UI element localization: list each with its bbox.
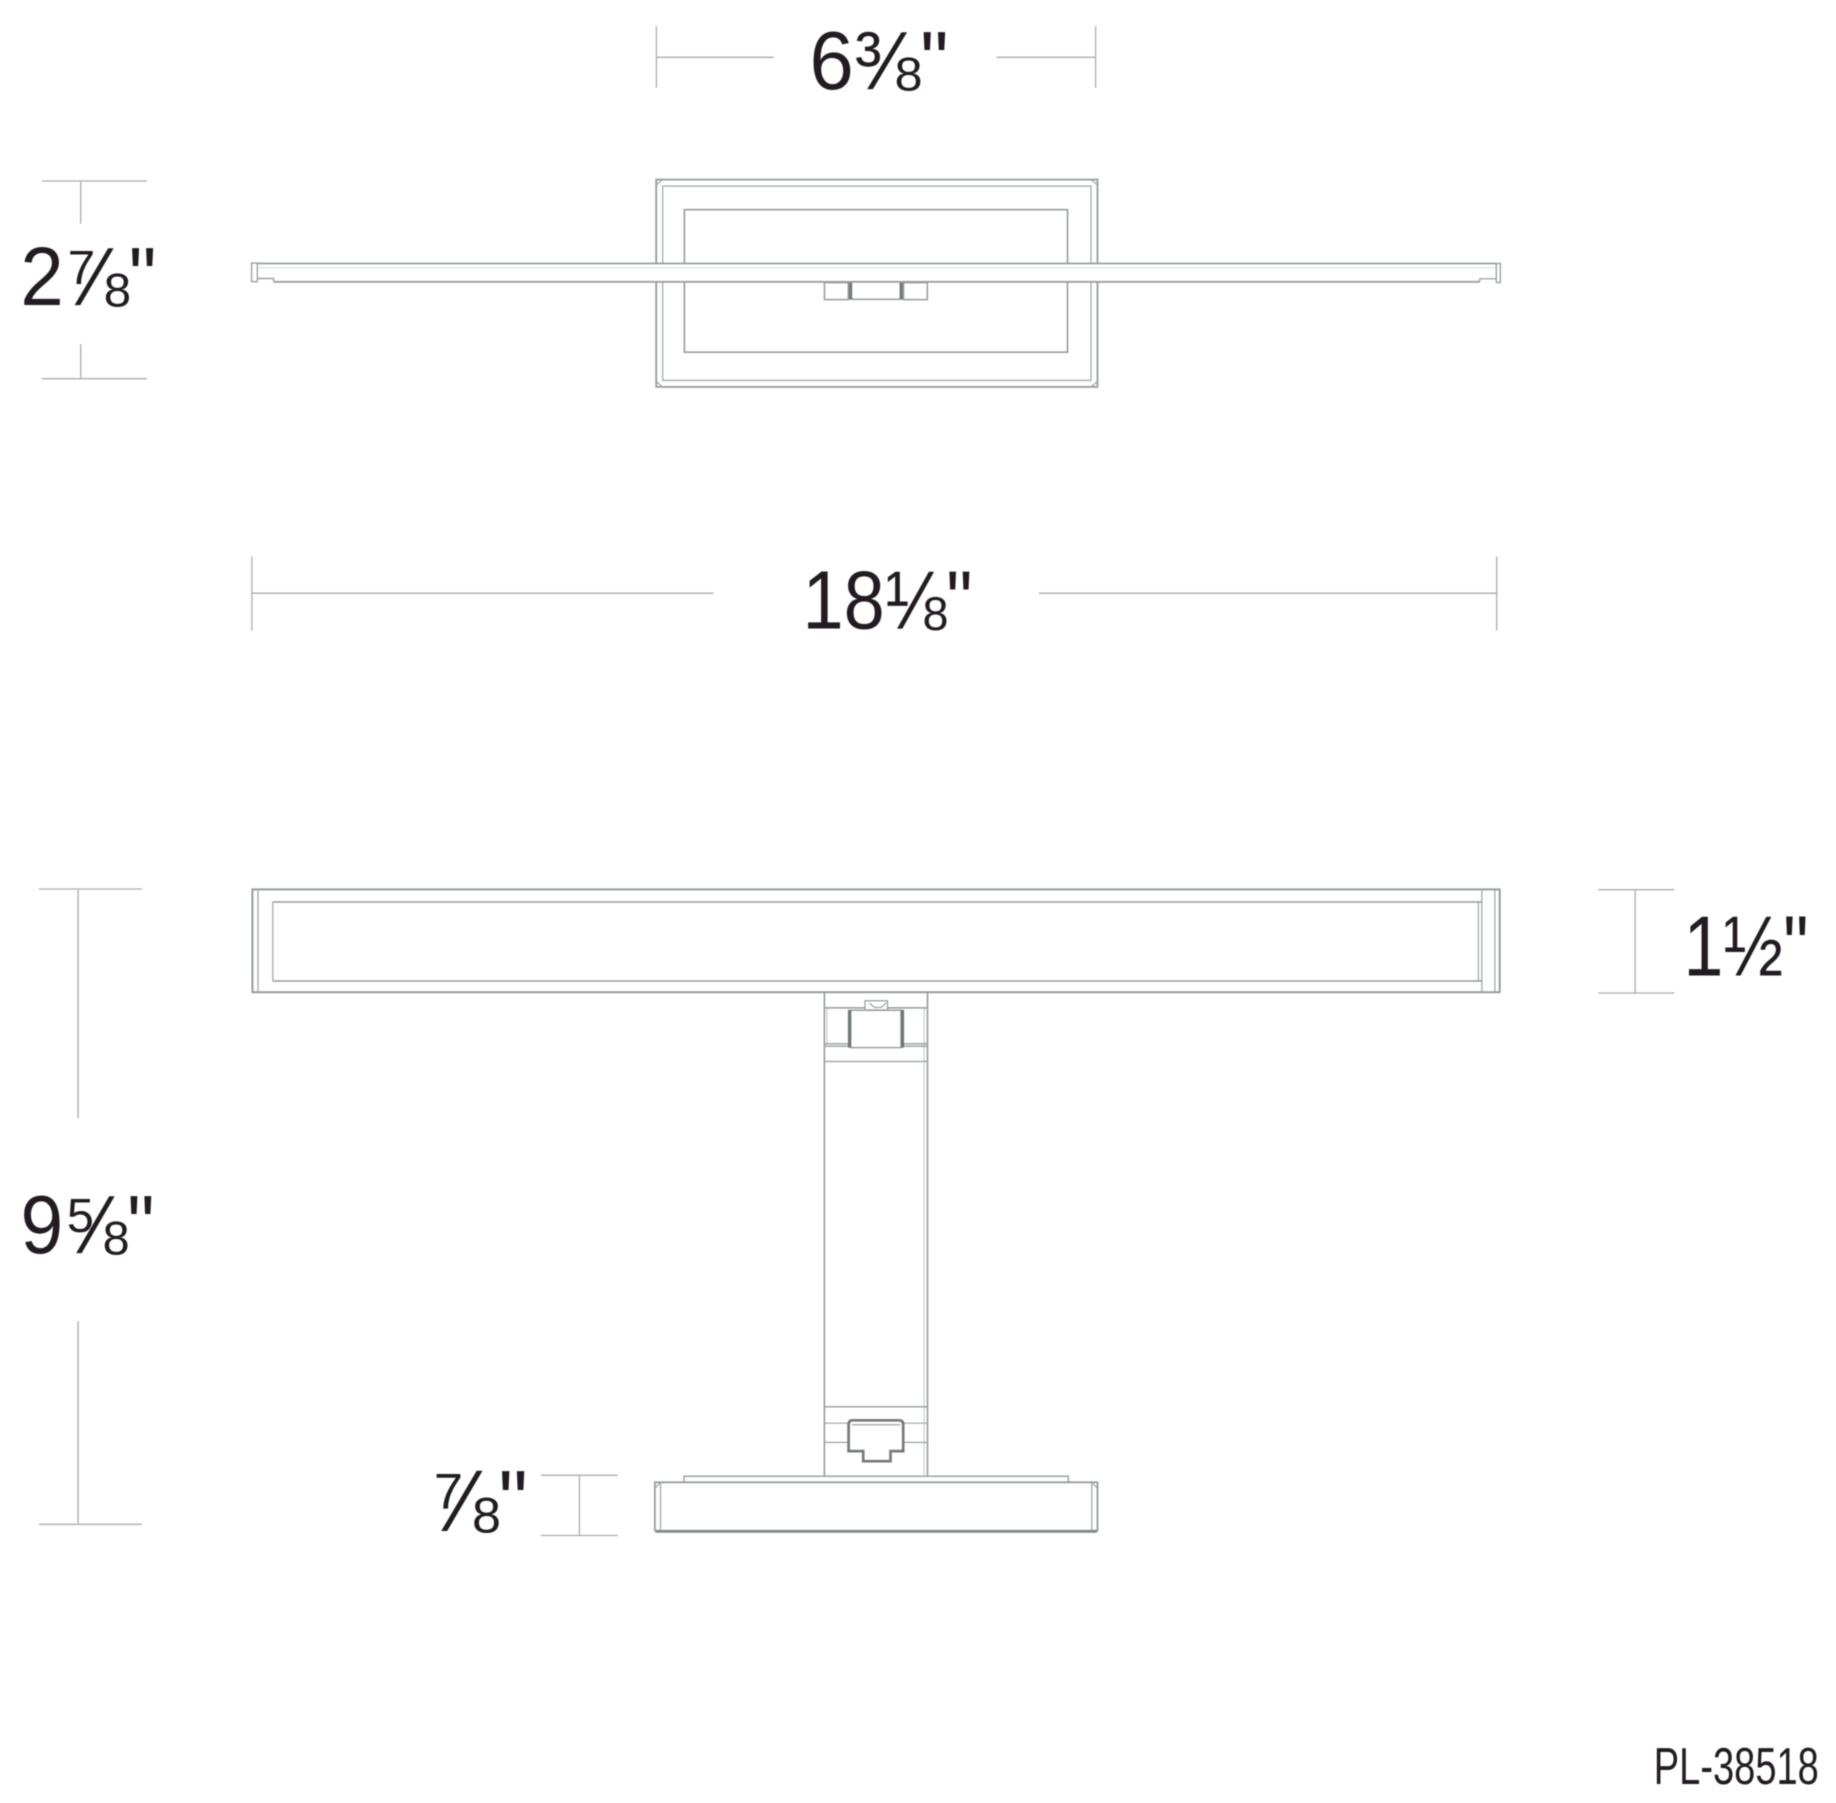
svg-text:PL-38518: PL-38518 — [1654, 1738, 1819, 1796]
svg-text:9⅝": 9⅝" — [21, 1178, 155, 1271]
svg-text:1½": 1½" — [1684, 900, 1809, 995]
svg-text:6⅜": 6⅜" — [810, 14, 949, 107]
svg-text:⅞": ⅞" — [430, 1453, 528, 1550]
svg-text:18⅛": 18⅛" — [803, 554, 973, 647]
svg-text:2⅞": 2⅞" — [20, 230, 156, 323]
